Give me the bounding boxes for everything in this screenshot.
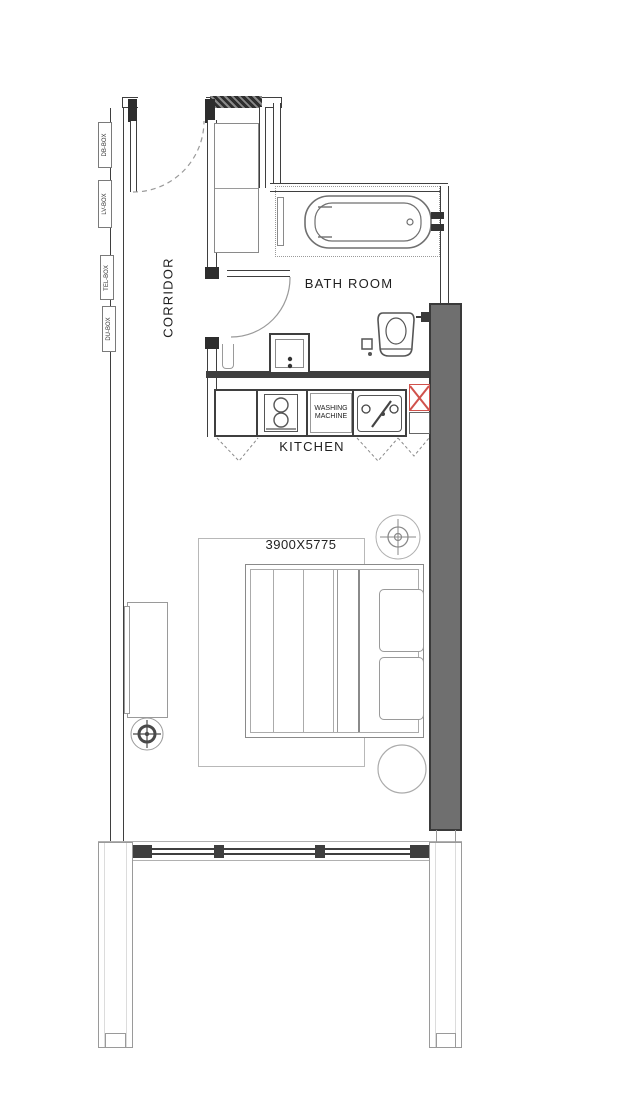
duct-x-lines xyxy=(410,386,429,410)
cabinet-door-marks xyxy=(217,438,429,461)
bathroom-door-swing-arc xyxy=(231,277,290,337)
side-table xyxy=(378,745,426,793)
ceiling-light-icon xyxy=(376,515,420,559)
fixture-overlay xyxy=(0,0,633,1100)
sink-faucet xyxy=(362,401,398,427)
entry-door-swing-arc xyxy=(133,121,204,192)
washbasin-faucet xyxy=(288,357,292,368)
toilet xyxy=(362,313,414,356)
bathtub xyxy=(305,196,444,248)
ceiling-light-icon-2 xyxy=(131,718,163,750)
stove-burners xyxy=(266,398,296,429)
floor-plan: DB-BOX LV-BOX TEL-BOX DU-BOX CORRIDOR BA… xyxy=(0,0,633,1100)
